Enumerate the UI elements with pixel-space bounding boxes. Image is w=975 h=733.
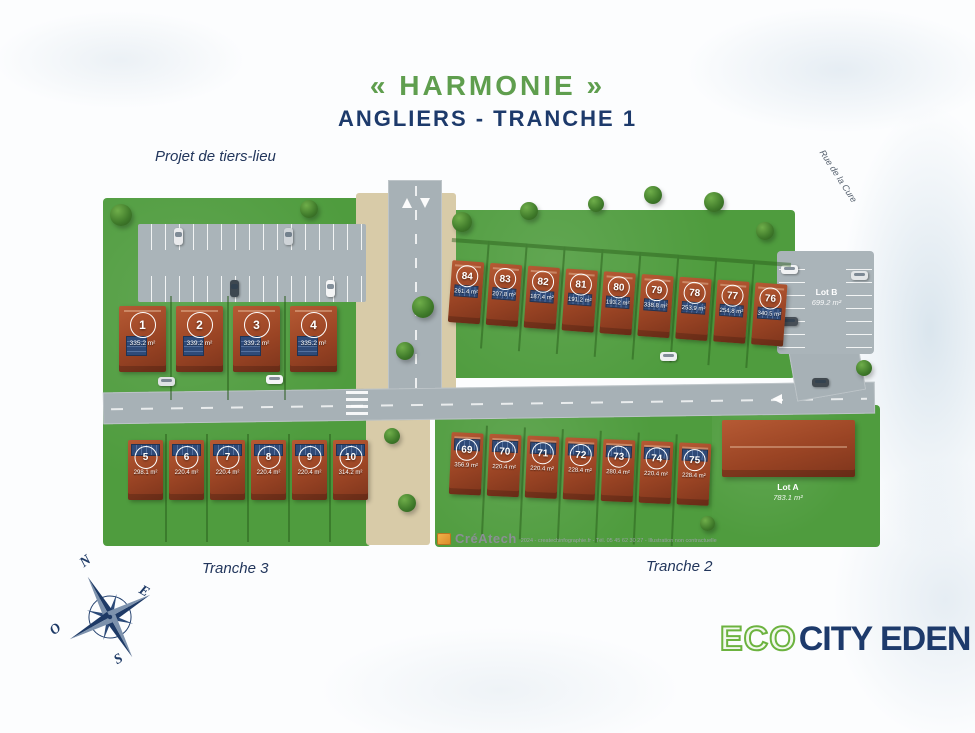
lot-parcel: 5 298.1 m² bbox=[126, 434, 167, 542]
road-arrow-down-icon bbox=[420, 198, 430, 208]
lot-a-label: Lot A 783.1 m² bbox=[748, 482, 828, 502]
lot-number-badge: 5 bbox=[134, 446, 157, 469]
parking-lot-northwest bbox=[138, 224, 366, 302]
tree-icon bbox=[384, 428, 400, 444]
tree-icon bbox=[396, 342, 414, 360]
crosswalk-marking bbox=[346, 391, 368, 417]
lot-area-label: 220.4 m² bbox=[290, 470, 329, 476]
lot-area-label: 339.2 m² bbox=[229, 340, 284, 347]
tree-icon bbox=[700, 516, 715, 531]
lot-parcel: 70 220.4 m² bbox=[483, 426, 526, 540]
lot-number-badge: 6 bbox=[175, 446, 198, 469]
lot-a-building bbox=[722, 420, 855, 477]
lot-parcel: 8 220.4 m² bbox=[249, 434, 290, 542]
car-icon bbox=[158, 377, 175, 386]
lot-number-badge: 4 bbox=[301, 312, 327, 338]
tree-icon bbox=[856, 360, 872, 376]
logo-eco-part: ECO bbox=[720, 620, 797, 658]
car-icon bbox=[230, 280, 239, 297]
tree-icon bbox=[520, 202, 538, 220]
car-icon bbox=[851, 271, 868, 280]
lot-parcel: 6 220.4 m² bbox=[167, 434, 208, 542]
compass-star-icon bbox=[60, 567, 160, 667]
credit-line: CréAtech 2024 - createchinfographie.fr -… bbox=[437, 531, 717, 546]
lot-b-label: Lot B 699.2 m² bbox=[799, 287, 854, 307]
lot-parcel: 3 339.2 m² bbox=[229, 296, 286, 400]
lot-area-label: 220.4 m² bbox=[249, 470, 288, 476]
street-name-label: Rue de la Cure bbox=[818, 148, 859, 204]
car-icon bbox=[812, 378, 829, 387]
lot-area-label: 220.4 m² bbox=[167, 470, 206, 476]
credit-fine-print: 2024 - createchinfographie.fr - Tél. 05 … bbox=[521, 538, 717, 544]
page-title: « HARMONIE » bbox=[0, 70, 975, 102]
compass-rose: N E S O bbox=[45, 552, 175, 682]
lot-number-badge: 7 bbox=[216, 446, 239, 469]
lot-row-1-4: 1 335.2 m² 2 339.2 m² 3 339.2 m² 4 335.2… bbox=[115, 296, 341, 400]
lot-number-badge: 3 bbox=[244, 312, 270, 338]
road-vertical bbox=[388, 180, 442, 398]
parking-stalls bbox=[138, 224, 366, 250]
site-plan-canvas: « HARMONIE » Angliers - Tranche 1 Lot B … bbox=[0, 0, 975, 733]
lot-parcel: 71 220.4 m² bbox=[521, 427, 564, 541]
lot-area-label: 220.4 m² bbox=[208, 470, 247, 476]
car-icon bbox=[660, 352, 677, 361]
tree-icon bbox=[300, 200, 318, 218]
tree-icon bbox=[398, 494, 416, 512]
tree-icon bbox=[412, 296, 434, 318]
lot-area-label: 314.2 m² bbox=[331, 470, 370, 476]
tree-icon bbox=[110, 204, 132, 226]
lot-parcel: 73 280.4 m² bbox=[597, 431, 640, 545]
lot-number-badge: 2 bbox=[187, 312, 213, 338]
lot-parcel: 10 314.2 m² bbox=[331, 434, 370, 542]
lot-number-badge: 8 bbox=[257, 446, 280, 469]
lot-row-69-75: 69 356.9 m² 70 220.4 m² 71 220.4 m² 72 2… bbox=[445, 424, 714, 548]
page-subtitle: Angliers - Tranche 1 bbox=[0, 106, 975, 132]
lot-parcel: 2 339.2 m² bbox=[172, 296, 229, 400]
lot-row-5-10: 5 298.1 m² 6 220.4 m² 7 220.4 m² 8 220.4… bbox=[126, 434, 370, 542]
lot-parcel: 69 356.9 m² bbox=[445, 424, 488, 538]
car-icon bbox=[266, 375, 283, 384]
createch-brand: CréAtech bbox=[455, 531, 517, 546]
lot-number-badge: 1 bbox=[130, 312, 156, 338]
lot-area-label: 298.1 m² bbox=[126, 470, 165, 476]
ecocity-eden-logo: ECOCITY EDEN bbox=[720, 620, 970, 659]
tree-icon bbox=[588, 196, 604, 212]
lot-area-label: 335.2 m² bbox=[286, 340, 341, 347]
tree-icon bbox=[644, 186, 662, 204]
parking-lot-b: Lot B 699.2 m² bbox=[777, 251, 874, 354]
lot-parcel: 74 220.4 m² bbox=[635, 433, 678, 547]
lot-parcel: 72 228.4 m² bbox=[559, 429, 602, 543]
lot-area-label: 335.2 m² bbox=[115, 340, 170, 347]
tree-icon bbox=[452, 212, 472, 232]
tree-icon bbox=[704, 192, 724, 212]
lot-number-badge: 10 bbox=[339, 446, 362, 469]
lot-area-label: 339.2 m² bbox=[172, 340, 227, 347]
lot-parcel: 7 220.4 m² bbox=[208, 434, 249, 542]
road-arrow-left-icon bbox=[772, 394, 782, 404]
car-icon bbox=[174, 228, 183, 245]
tree-icon bbox=[756, 222, 774, 240]
lot-parcel: 9 220.4 m² bbox=[290, 434, 331, 542]
lot-number-badge: 9 bbox=[298, 446, 321, 469]
car-icon bbox=[326, 280, 335, 297]
createch-logo-icon bbox=[437, 533, 451, 545]
tranche-3-label: Tranche 3 bbox=[202, 560, 268, 577]
road-arrow-up-icon bbox=[402, 198, 412, 208]
tranche-2-label: Tranche 2 bbox=[646, 558, 712, 575]
logo-city-eden-part: CITY EDEN bbox=[799, 620, 971, 658]
tiers-lieu-label: Projet de tiers-lieu bbox=[155, 148, 276, 165]
lot-parcel: 4 335.2 m² bbox=[286, 296, 341, 400]
car-icon bbox=[284, 228, 293, 245]
